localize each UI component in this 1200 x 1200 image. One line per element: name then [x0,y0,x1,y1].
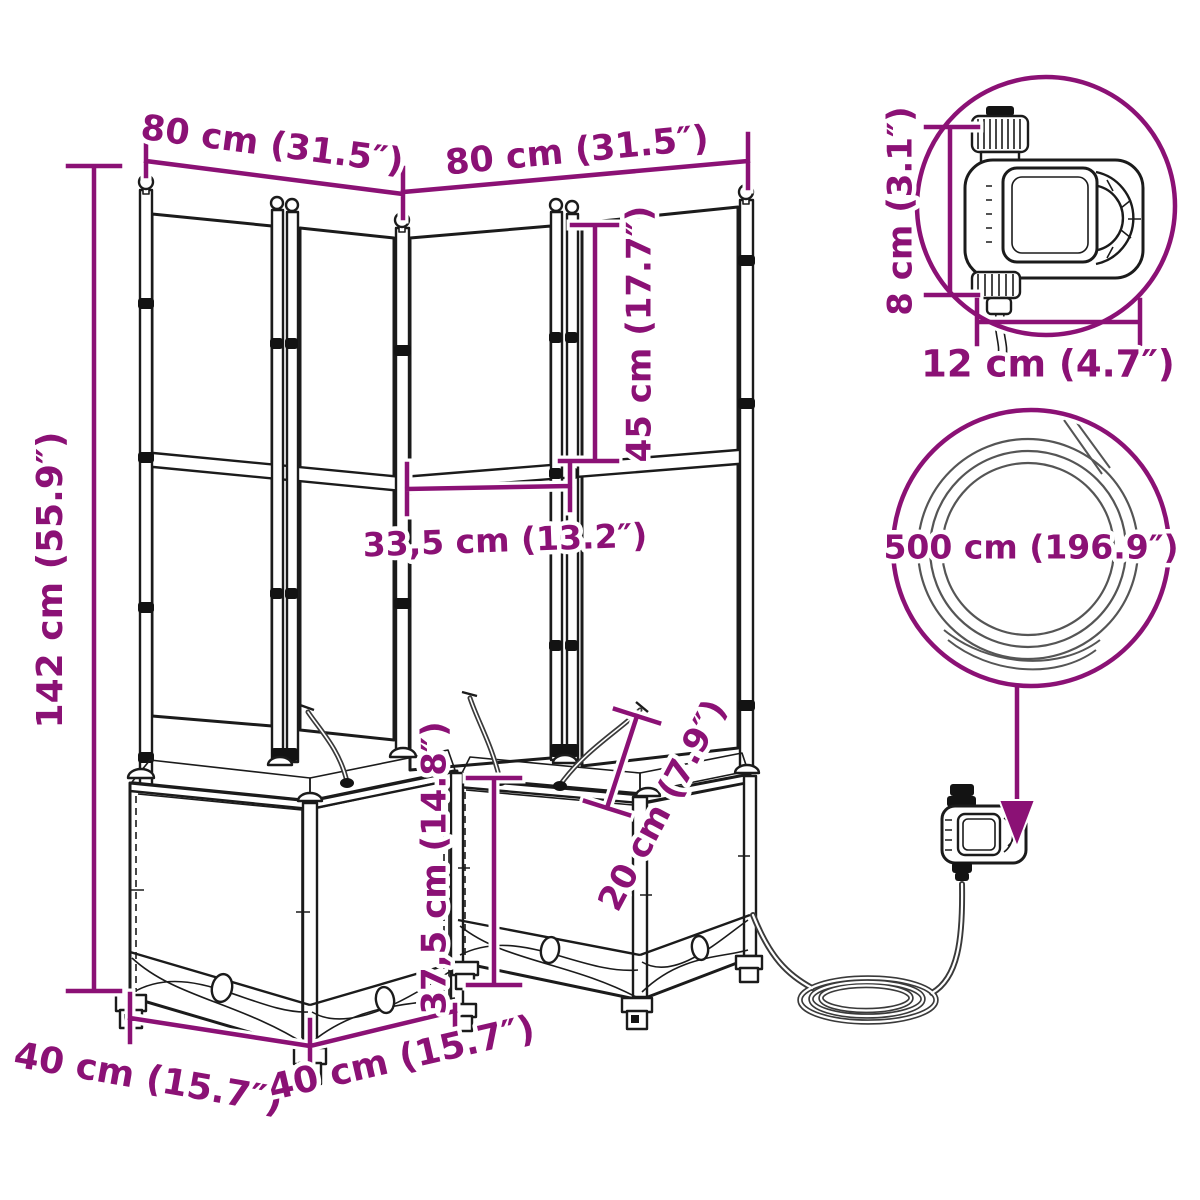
dim-box-height: 37,5 cm (14.8″) [415,721,455,1014]
diagram-canvas: 80 cm (31.5″) 80 cm (31.5″) 142 cm (55.9… [0,0,1200,1200]
dim-timer-width: 12 cm (4.7″) [921,343,1175,386]
dim-hose-length: 500 cm (196.9″) [883,528,1178,567]
dim-upper-trellis-height: 45 cm (17.7″) [620,206,660,463]
dim-timer-height: 8 cm (3.1″) [881,106,921,315]
box-corner-trim [744,776,756,956]
hose-outlet [987,298,1011,314]
diagram-page: 80 cm (31.5″) 80 cm (31.5″) 142 cm (55.9… [0,0,1200,1200]
dim-total-height: 142 cm (55.9″) [30,432,71,729]
